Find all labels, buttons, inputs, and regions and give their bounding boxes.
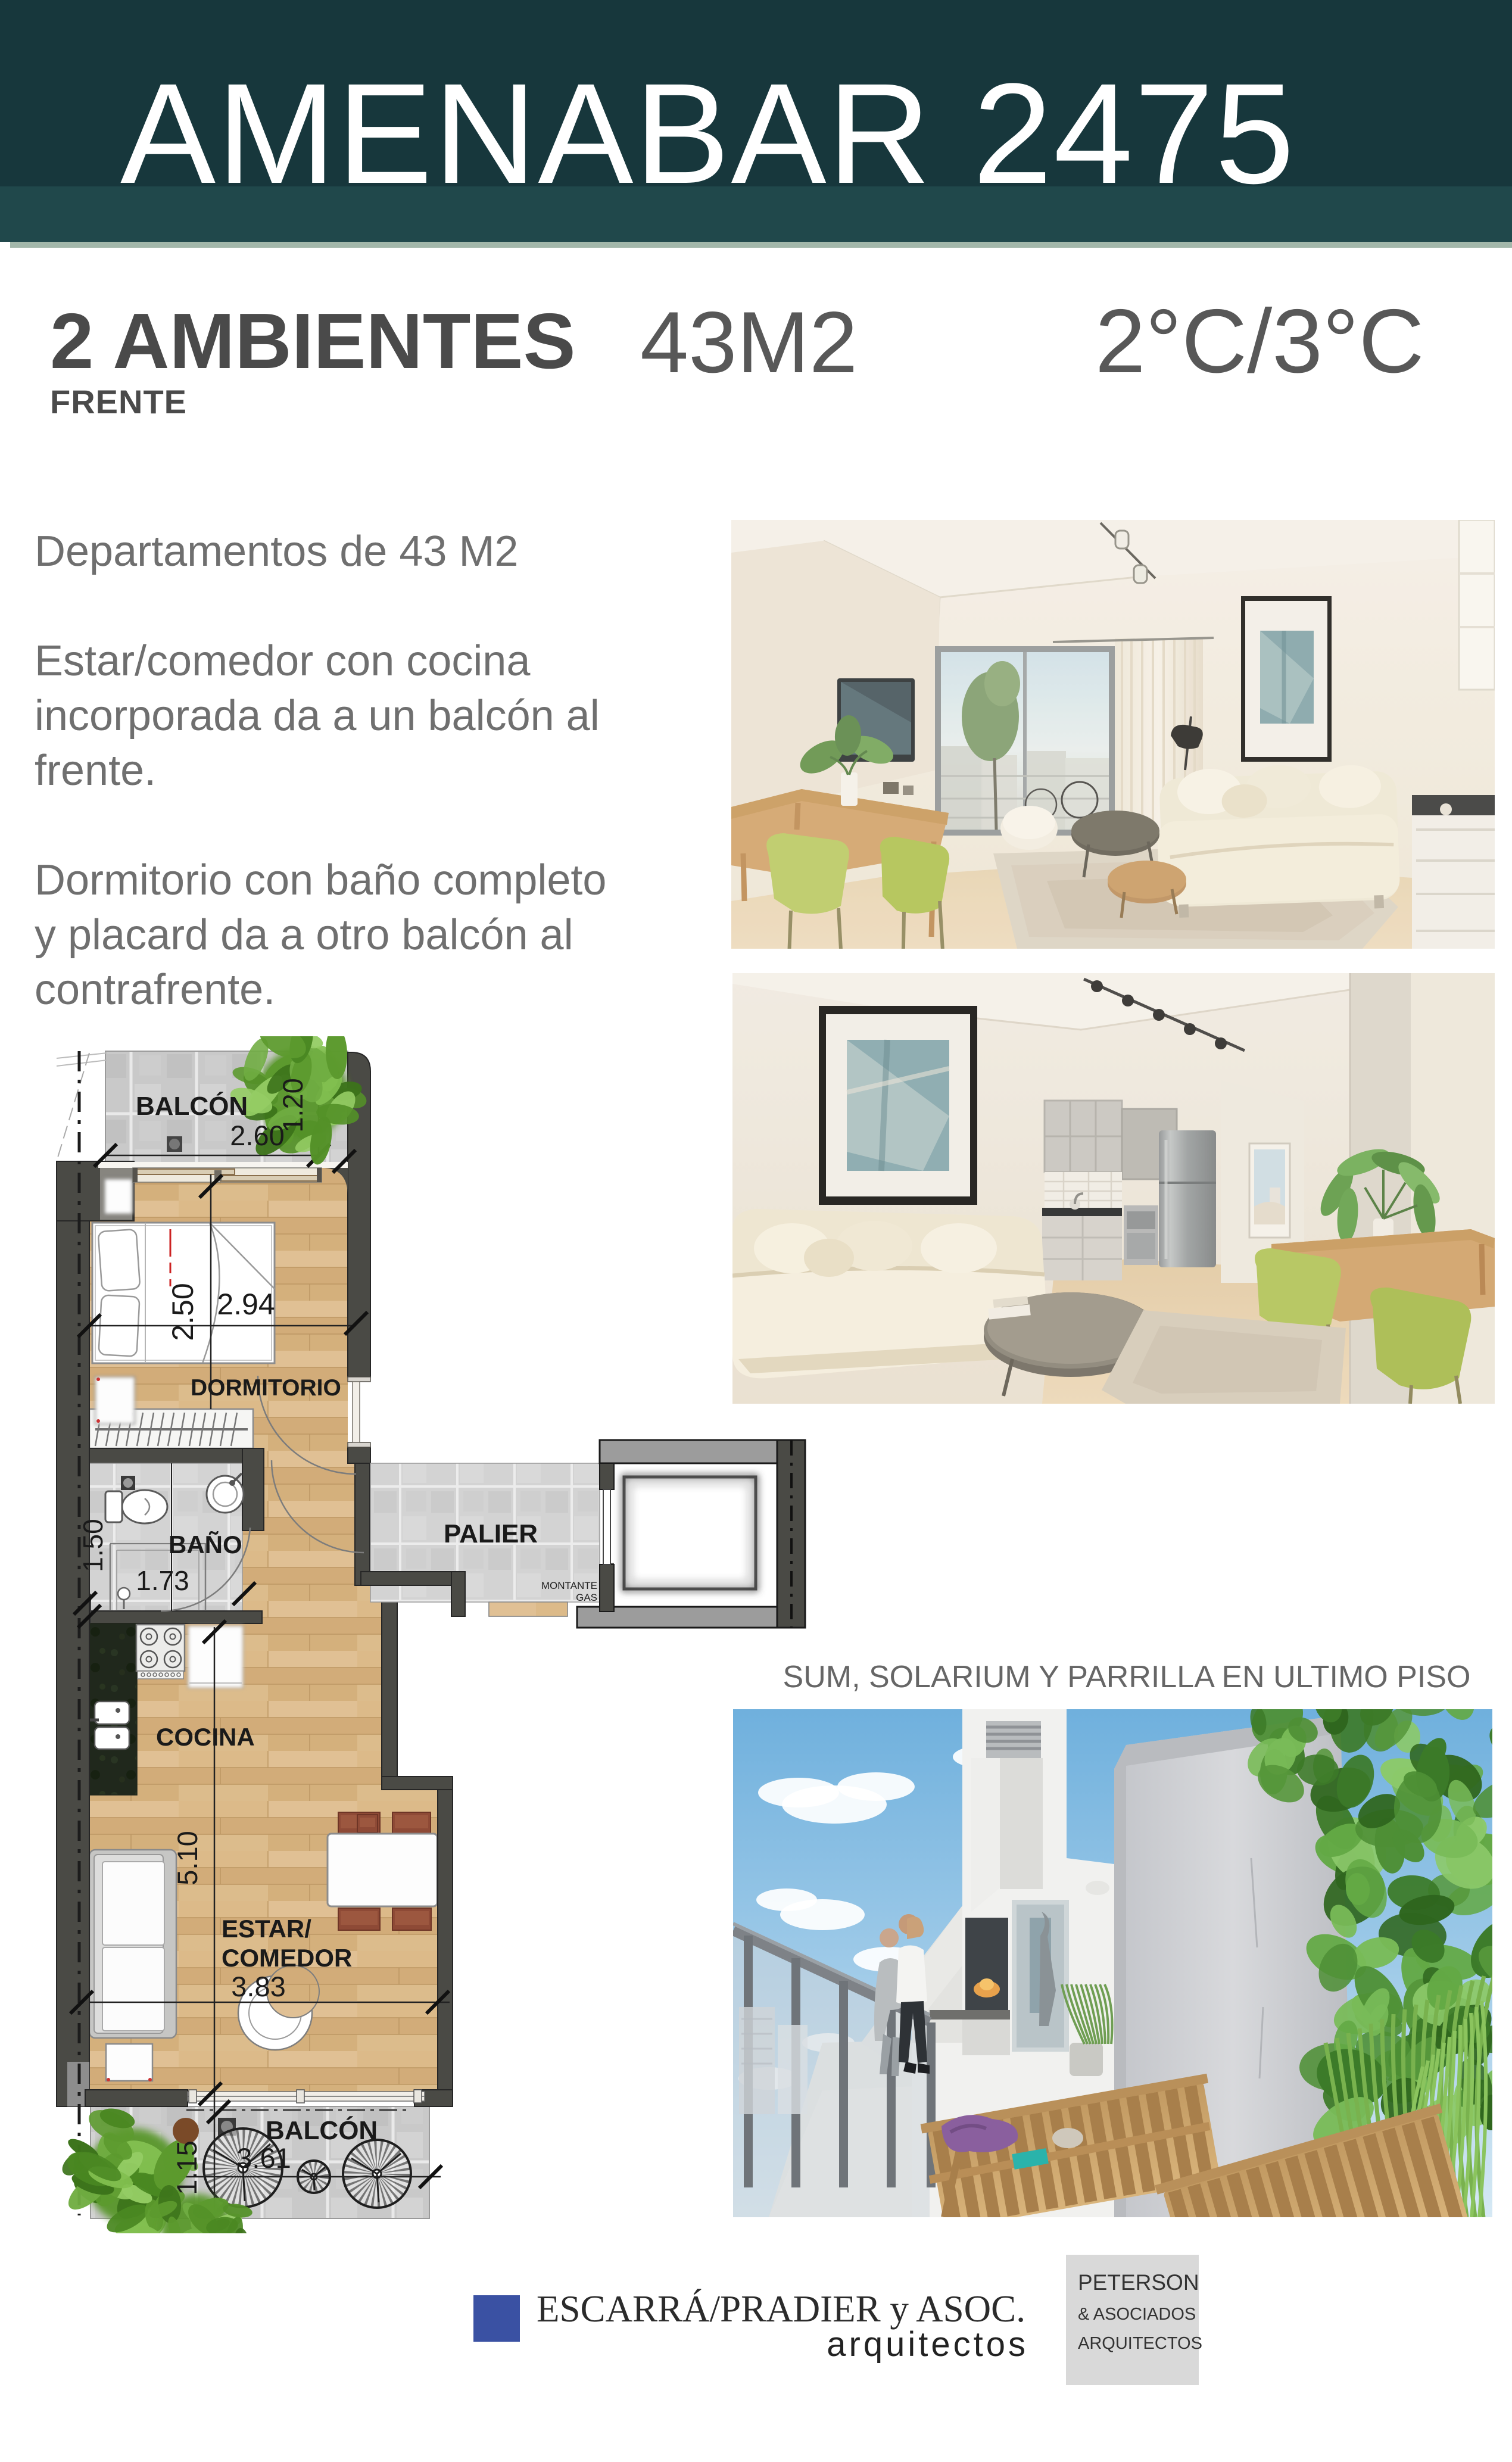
svg-text:ESTAR/: ESTAR/	[222, 1915, 311, 1943]
svg-text:2.50: 2.50	[166, 1283, 199, 1341]
svg-text:GAS: GAS	[576, 1592, 597, 1603]
svg-text:BAÑO: BAÑO	[169, 1531, 242, 1559]
svg-text:1.20: 1.20	[277, 1078, 308, 1132]
svg-text:1.73: 1.73	[136, 1565, 189, 1596]
svg-text:COMEDOR: COMEDOR	[222, 1944, 352, 1972]
svg-text:PALIER: PALIER	[444, 1519, 538, 1548]
svg-text:BALCÓN: BALCÓN	[136, 1091, 248, 1121]
svg-text:1.50: 1.50	[77, 1519, 108, 1572]
svg-text:COCINA: COCINA	[156, 1723, 255, 1751]
svg-text:3.83: 3.83	[231, 1971, 285, 2002]
svg-text:1.15: 1.15	[171, 2140, 202, 2195]
svg-text:BALCÓN: BALCÓN	[266, 2115, 378, 2145]
svg-text:5.10: 5.10	[172, 1831, 203, 1885]
svg-text:MONTANTE: MONTANTE	[541, 1580, 597, 1591]
svg-text:DORMITORIO: DORMITORIO	[191, 1375, 341, 1401]
svg-text:2.94: 2.94	[217, 1288, 275, 1321]
svg-text:3.61: 3.61	[236, 2142, 291, 2174]
